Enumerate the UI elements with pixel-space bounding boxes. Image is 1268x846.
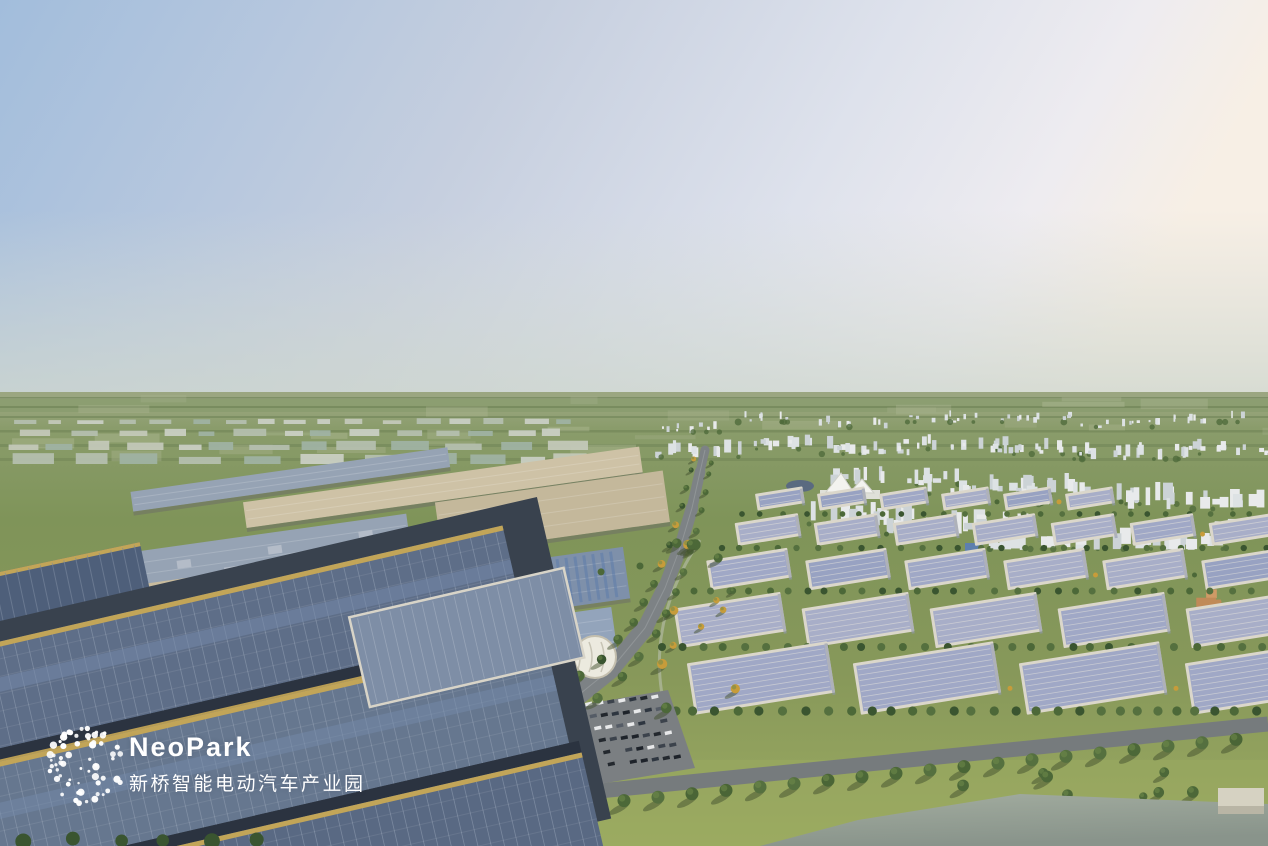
aerial-rendering (0, 0, 1268, 846)
sky (0, 0, 1268, 400)
screenshot-canvas: NeoPark 新桥智能电动汽车产业园 (0, 0, 1268, 846)
logo-wordmark: NeoPark (129, 733, 366, 763)
logo-subtitle: 新桥智能电动汽车产业园 (129, 769, 366, 796)
neopark-watermark: NeoPark 新桥智能电动汽车产业园 (129, 733, 366, 796)
